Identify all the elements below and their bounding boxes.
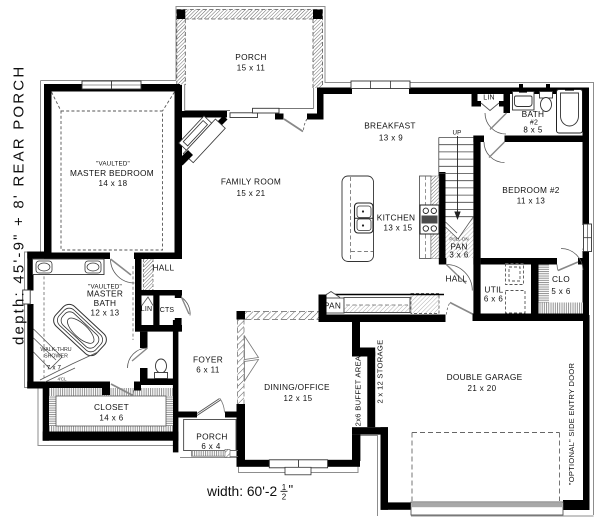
svg-text:12 x 13: 12 x 13	[90, 309, 119, 318]
svg-text:2: 2	[282, 492, 287, 501]
svg-text:13 x 15: 13 x 15	[383, 224, 412, 233]
svg-text:CLO: CLO	[552, 274, 570, 284]
svg-text:12 x 15: 12 x 15	[283, 394, 312, 403]
svg-text:11 x 13: 11 x 13	[517, 197, 546, 206]
svg-text:14 x 6: 14 x 6	[99, 414, 123, 423]
svg-text:CLOSET: CLOSET	[94, 402, 129, 412]
svg-text:6 x 11: 6 x 11	[196, 366, 220, 375]
svg-text:CTS: CTS	[160, 307, 175, 314]
svg-text:BEDROOM #2: BEDROOM #2	[502, 185, 559, 195]
svg-text:6 x 6: 6 x 6	[484, 295, 503, 304]
svg-text:DINING/OFFICE: DINING/OFFICE	[264, 382, 330, 392]
svg-text:15 x 21: 15 x 21	[236, 189, 265, 198]
svg-text:WALK-THRU: WALK-THRU	[40, 347, 71, 353]
svg-text:8 x 5: 8 x 5	[523, 126, 542, 135]
svg-text:MASTER BEDROOM: MASTER BEDROOM	[70, 168, 154, 178]
svg-text:UP: UP	[453, 130, 462, 137]
svg-text:FOYER: FOYER	[193, 355, 223, 365]
svg-text:1: 1	[282, 483, 287, 492]
svg-text:LIN: LIN	[483, 95, 495, 102]
svg-text:5 x 6: 5 x 6	[551, 287, 570, 296]
svg-text:": "	[289, 482, 294, 497]
svg-text:LIN: LIN	[141, 306, 153, 313]
svg-text:"OPTIONAL" SIDE ENTRY DOOR: "OPTIONAL" SIDE ENTRY DOOR	[567, 362, 576, 485]
svg-text:3 x 6: 3 x 6	[449, 251, 468, 260]
svg-text:SHOWER: SHOWER	[44, 354, 68, 360]
svg-text:2x6 BUFFET AREA: 2x6 BUFFET AREA	[354, 355, 363, 426]
svg-text:PORCH: PORCH	[235, 52, 266, 62]
svg-text:KITCHEN: KITCHEN	[377, 213, 416, 223]
svg-text:6 x 4: 6 x 4	[201, 442, 220, 451]
svg-text:depth: 45'-9" + 8' REAR PORCH: depth: 45'-9" + 8' REAR PORCH	[11, 65, 28, 345]
svg-text:7 x 7: 7 x 7	[47, 365, 62, 372]
svg-text:PORCH: PORCH	[196, 432, 227, 442]
svg-text:13 x 9: 13 x 9	[379, 134, 403, 143]
svg-text:width: 60'-2: width: 60'-2	[206, 484, 277, 499]
svg-text:BATH: BATH	[94, 298, 117, 308]
svg-text:FAMILY ROOM: FAMILY ROOM	[221, 177, 281, 187]
svg-text:4'CL: 4'CL	[57, 377, 67, 382]
svg-text:21 x 20: 21 x 20	[467, 384, 496, 393]
svg-text:2 x 12 STORAGE: 2 x 12 STORAGE	[376, 340, 385, 404]
svg-text:15 x 11: 15 x 11	[237, 64, 266, 73]
svg-text:14 x 18: 14 x 18	[98, 179, 127, 188]
svg-text:BREAKFAST: BREAKFAST	[364, 121, 416, 131]
svg-text:BATH: BATH	[522, 109, 545, 119]
svg-text:MASTER: MASTER	[87, 289, 123, 299]
svg-text:UTIL: UTIL	[484, 285, 503, 295]
svg-text:DOUBLE GARAGE: DOUBLE GARAGE	[447, 372, 523, 382]
svg-text:HALL: HALL	[153, 263, 175, 273]
svg-text:HALL: HALL	[446, 274, 468, 284]
svg-text:"VAULTED": "VAULTED"	[96, 161, 130, 168]
